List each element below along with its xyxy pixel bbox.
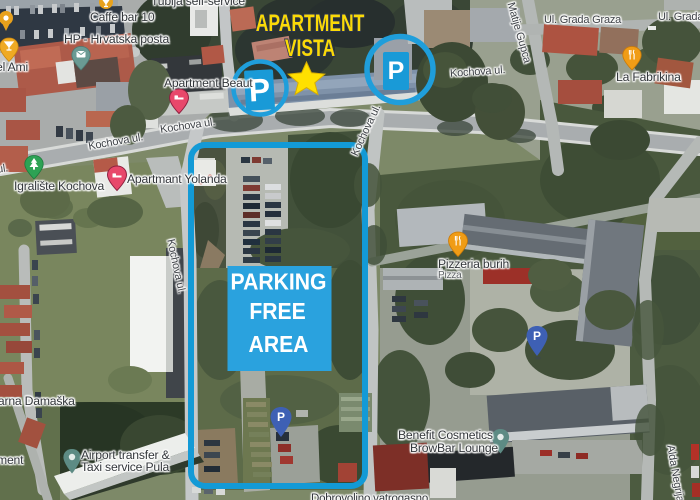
svg-text:APARTMENT: APARTMENT xyxy=(256,10,365,36)
svg-text:VISTA: VISTA xyxy=(285,35,335,61)
